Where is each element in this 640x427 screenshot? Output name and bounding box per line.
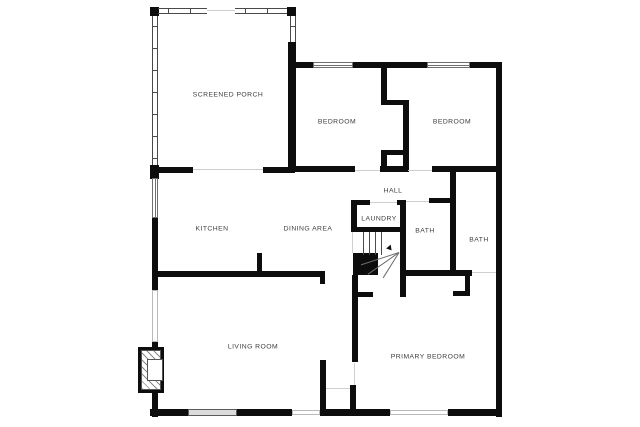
bedroom-left-window	[313, 62, 353, 68]
laundry-top-wall	[351, 200, 370, 205]
bottom-wall-a	[150, 409, 188, 416]
bath-left-door	[406, 201, 429, 202]
stair-tread	[381, 232, 382, 255]
closet-jog-horizontal	[453, 291, 470, 296]
porch-right-wall	[288, 42, 296, 168]
hall-bedroom-opening	[355, 170, 380, 171]
kitchen-peninsula	[257, 253, 262, 271]
closet-wall-b	[403, 100, 409, 172]
room-label-bedroom-right: BEDROOM	[433, 119, 471, 126]
living-primary-wall	[352, 275, 358, 362]
basement-stair-opening	[352, 232, 353, 253]
vestibule-right-wall	[350, 385, 356, 411]
stair-tread	[363, 232, 364, 255]
porch-bottom-wall-a	[158, 167, 193, 173]
room-label-primary-bedroom: PRIMARY BEDROOM	[391, 354, 465, 361]
staircase	[357, 232, 401, 255]
room-label-laundry: LAUNDRY	[361, 216, 397, 223]
bedroom-right-door	[408, 170, 432, 171]
bath-bottom-wall	[406, 270, 472, 276]
bottom-wall-b	[237, 409, 292, 416]
living-bottom-window	[188, 409, 237, 416]
bedroom-top-wall-a	[293, 62, 313, 68]
room-label-hall: HALL	[384, 188, 403, 195]
porch-kitchen-opening	[193, 169, 263, 170]
left-wall-mid	[152, 218, 158, 290]
right-exterior-wall	[496, 62, 502, 417]
bedroom-top-wall-b	[353, 62, 427, 68]
porch-screen-top-left	[158, 8, 207, 14]
stair-tread	[375, 232, 376, 255]
bath-right-entry	[472, 272, 496, 273]
kitchen-left-window	[152, 178, 158, 218]
porch-screen-left	[152, 16, 158, 165]
bottom-wall-d	[448, 409, 502, 416]
room-label-dining-area: DINING AREA	[284, 226, 333, 233]
porch-screen-right	[290, 16, 296, 42]
laundry-door	[370, 202, 397, 203]
kitchen-living-wall	[158, 271, 325, 277]
bedroom-bottom-wall-a	[290, 166, 355, 172]
closet-wall-a-lower	[381, 150, 387, 172]
porch-top-gap	[207, 10, 235, 11]
bedroom-bottom-wall-c	[432, 166, 502, 172]
room-label-bedroom-left: BEDROOM	[318, 119, 356, 126]
bath-divider-wall	[450, 172, 456, 272]
room-label-kitchen: KITCHEN	[196, 226, 229, 233]
bedroom-right-window	[427, 62, 470, 68]
stair-tread	[369, 232, 370, 255]
primary-bottom-window	[390, 410, 448, 415]
vestibule-threshold	[326, 388, 350, 389]
stair-direction-arrow	[386, 245, 394, 253]
bottom-window-small	[292, 410, 320, 415]
bath-left-top-wall	[429, 198, 456, 203]
room-label-bath-right: BATH	[469, 237, 488, 244]
porch-bottom-wall-b	[263, 167, 295, 173]
room-label-bath-left: BATH	[415, 228, 434, 235]
floor-plan: SCREENED PORCHBEDROOMBEDROOMHALLKITCHEND…	[0, 0, 640, 427]
floor-plan-page: SCREENED PORCHBEDROOMBEDROOMHALLKITCHEND…	[0, 0, 640, 427]
primary-bedroom-door	[354, 363, 355, 385]
fireplace-firebox	[147, 359, 163, 381]
porch-screen-top-right	[235, 8, 287, 14]
porch-corner-tr	[287, 7, 296, 16]
vestibule-left-wall	[320, 360, 326, 412]
room-label-screened-porch: SCREENED PORCH	[193, 92, 264, 99]
chimney-block	[353, 253, 378, 275]
living-left-window	[152, 290, 158, 342]
living-primary-stub	[358, 292, 373, 297]
room-label-living-room: LIVING ROOM	[228, 344, 278, 351]
kitchen-wall-stub	[320, 277, 325, 284]
